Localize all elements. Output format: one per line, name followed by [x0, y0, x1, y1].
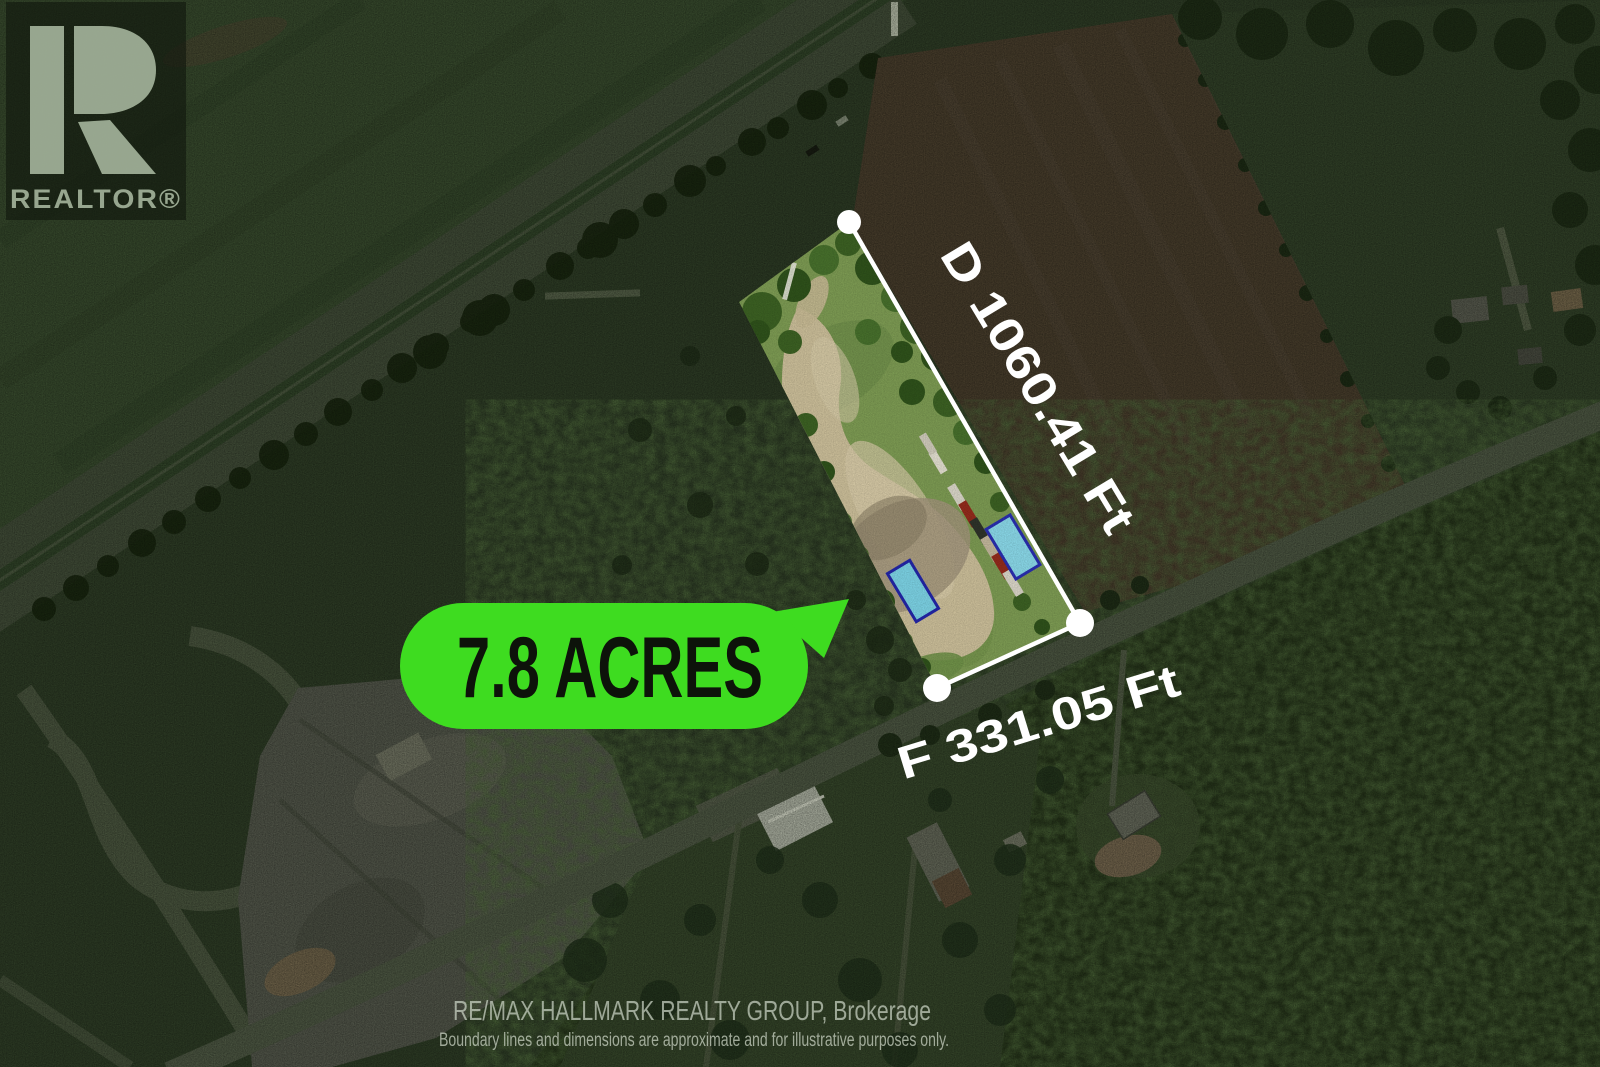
realtor-wordmark: REALTOR® [10, 184, 182, 214]
corner-marker-south [923, 674, 951, 702]
grain-texture [0, 0, 1600, 1067]
corner-marker-top [837, 210, 861, 234]
disclaimer-text: Boundary lines and dimensions are approx… [439, 1030, 949, 1051]
area-callout: 7.8 ACRES [400, 599, 849, 729]
satellite-map: D 1060.41 Ft F 331.05 Ft 7.8 ACRES REALT… [0, 0, 1600, 1067]
realtor-logo-r-bar [30, 26, 64, 174]
brokerage-credit: RE/MAX HALLMARK REALTY GROUP, Brokerage [453, 995, 931, 1026]
corner-marker-east [1066, 609, 1094, 637]
area-callout-label: 7.8 ACRES [457, 620, 763, 716]
realtor-watermark: REALTOR® [6, 2, 186, 220]
listing-image: D 1060.41 Ft F 331.05 Ft 7.8 ACRES REALT… [0, 0, 1600, 1067]
